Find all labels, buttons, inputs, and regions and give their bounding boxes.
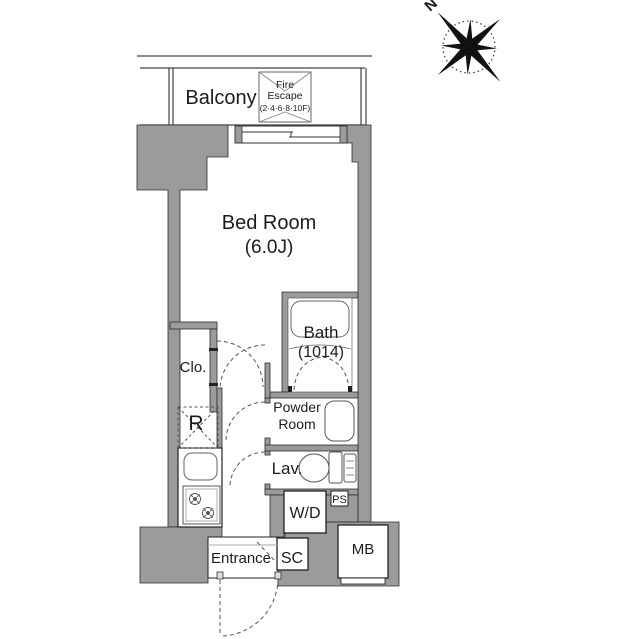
bedroom-size: (6.0J) [245,237,294,258]
closet-door-arc [217,341,263,387]
bath-label: Bath [304,323,339,342]
compass-rose: N [394,0,531,110]
wall-closet-top [170,322,217,329]
wall-door-stub [265,363,270,398]
kitchen-sink [184,453,217,480]
compass-north-label: N [421,0,440,15]
fire-escape-label: Escape [267,90,302,102]
washbasin [325,401,354,441]
meter-box-slot [341,578,385,584]
entrance-door-arc [220,578,278,636]
lav-door-arc [230,452,265,487]
stove [183,486,220,524]
bath-size: (1014) [298,344,344,361]
walls [137,125,399,586]
wall-powder-top [270,392,358,398]
floor-plan: Fire Escape (2·4·6·8·10F) [0,0,640,639]
lavatory-label: Lav. [272,459,303,478]
fire-escape-hatch: Fire Escape (2·4·6·8·10F) [259,72,311,122]
pipe-space-label: PS [332,494,347,506]
powder-room-label: Room [278,416,315,432]
toilet [299,452,356,483]
powder-room-label: Powder [273,399,321,415]
wall-powder-lav [265,445,358,451]
kitchen-counter [178,448,222,527]
closet-label: Clo. [180,359,207,376]
entrance-label: Entrance [211,550,271,567]
balcony-window [235,126,347,143]
powder-door-arc [226,402,265,441]
bedroom-label: Bed Room [222,212,317,234]
shoe-closet-label: SC [281,550,303,567]
fire-escape-floors: (2·4·6·8·10F) [260,103,311,113]
balcony-label: Balcony [185,87,256,109]
washer-dryer-label: W/D [289,505,320,522]
wall-closet-right [210,329,217,412]
meter-box-label: MB [352,541,375,558]
refrigerator-label: R [188,412,203,435]
